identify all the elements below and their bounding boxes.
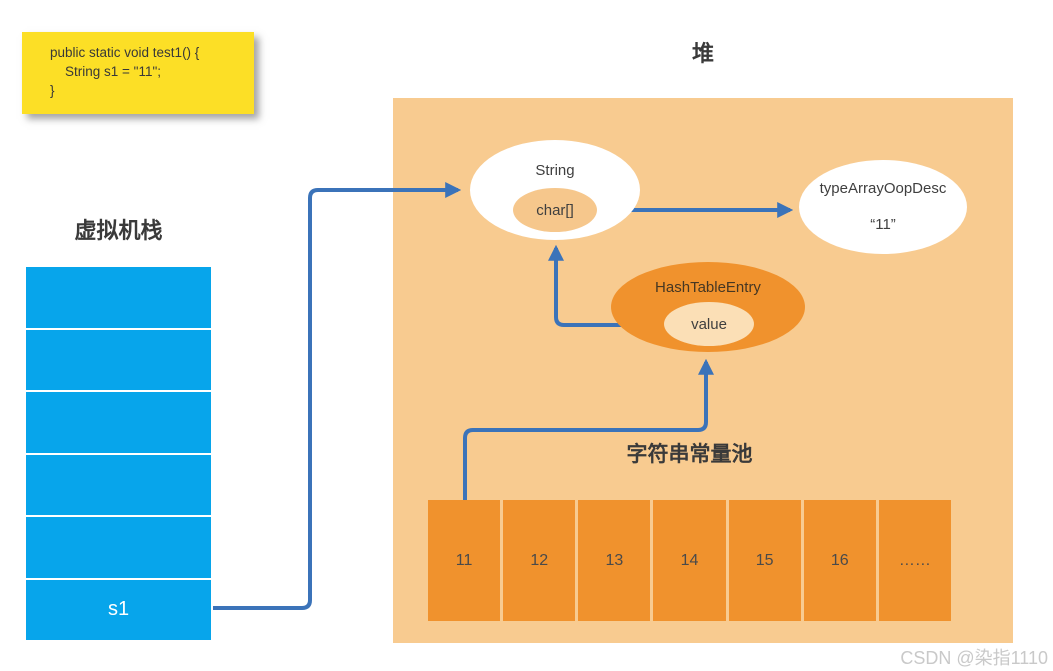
stack-cell: [26, 392, 211, 453]
string-node-ellipse: String char[]: [470, 140, 640, 240]
pool-cell: 16: [804, 500, 876, 621]
type-array-value: “11”: [799, 216, 967, 233]
code-line: }: [50, 81, 254, 100]
stack-title: 虚拟机栈: [26, 213, 211, 245]
heap-title: 堆: [393, 36, 1013, 68]
value-ellipse: value: [664, 302, 754, 346]
code-line: public static void test1() {: [50, 43, 254, 62]
stack-cell: [26, 517, 211, 578]
watermark: CSDN @染指1110: [842, 644, 1048, 670]
stack-cell: [26, 267, 211, 328]
char-array-ellipse: char[]: [513, 188, 597, 232]
vm-stack: s1: [26, 267, 211, 640]
jvm-string-diagram: public static void test1() { String s1 =…: [0, 0, 1053, 671]
string-pool: 11 12 13 14 15 16 ……: [428, 500, 951, 621]
stack-cell: [26, 455, 211, 516]
string-pool-label: 字符串常量池: [428, 438, 951, 468]
pool-cell: 14: [653, 500, 725, 621]
code-note: public static void test1() { String s1 =…: [22, 32, 254, 114]
value-label: value: [691, 316, 727, 333]
pool-cell: 11: [428, 500, 500, 621]
string-node-label: String: [470, 162, 640, 179]
type-array-node-ellipse: typeArrayOopDesc “11”: [799, 160, 967, 254]
code-line: String s1 = "11";: [50, 62, 254, 81]
char-array-label: char[]: [536, 202, 574, 219]
hash-entry-ellipse: HashTableEntry value: [611, 262, 805, 352]
pool-cell: 12: [503, 500, 575, 621]
pool-cell: 13: [578, 500, 650, 621]
stack-cell: [26, 330, 211, 391]
pool-cell: ……: [879, 500, 951, 621]
type-array-label: typeArrayOopDesc: [799, 180, 967, 197]
stack-cell-s1: s1: [26, 580, 211, 641]
pool-cell: 15: [729, 500, 801, 621]
hash-entry-label: HashTableEntry: [611, 279, 805, 296]
